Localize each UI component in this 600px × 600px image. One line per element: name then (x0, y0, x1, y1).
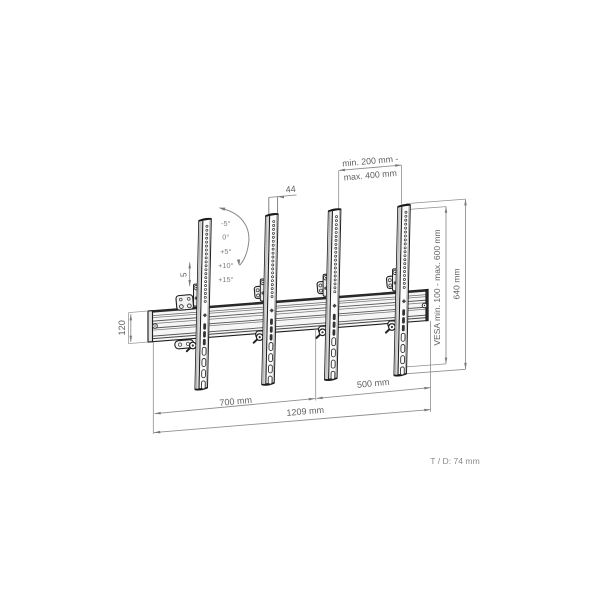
svg-text:1209 mm: 1209 mm (286, 405, 324, 418)
svg-text:VESA min. 100 - max. 600 mm: VESA min. 100 - max. 600 mm (432, 229, 442, 345)
svg-text:5: 5 (179, 272, 188, 277)
svg-text:+10°: +10° (218, 261, 233, 270)
svg-text:0°: 0° (222, 232, 229, 241)
svg-text:700 mm: 700 mm (219, 395, 252, 408)
svg-text:640 mm: 640 mm (451, 268, 461, 299)
svg-text:44: 44 (285, 184, 296, 195)
svg-text:120: 120 (117, 320, 127, 335)
svg-text:max. 400 mm: max. 400 mm (343, 168, 397, 183)
svg-text:500 mm: 500 mm (357, 377, 390, 390)
svg-text:T / D: 74 mm: T / D: 74 mm (430, 456, 480, 466)
svg-text:-5°: -5° (221, 219, 230, 228)
svg-text:+5°: +5° (220, 247, 231, 256)
svg-text:+15°: +15° (218, 275, 233, 284)
